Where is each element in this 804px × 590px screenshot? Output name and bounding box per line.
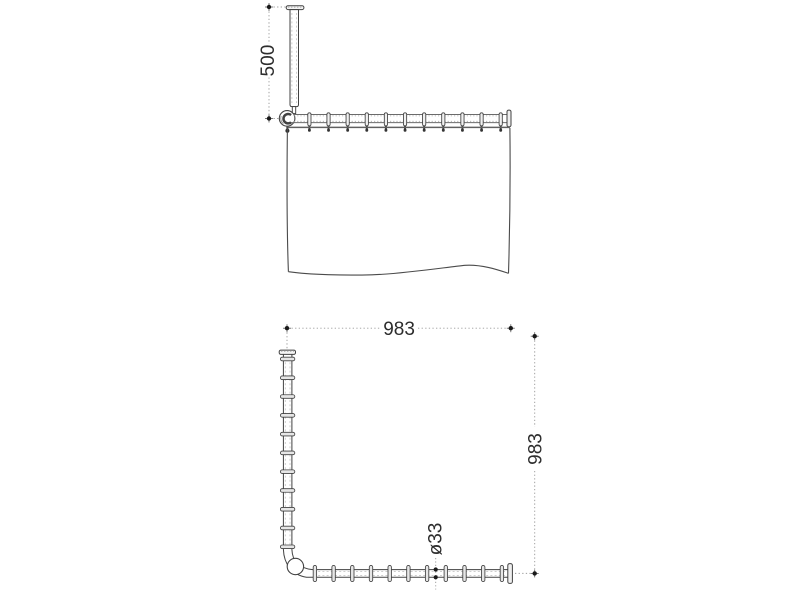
svg-text:983: 983 <box>383 319 415 340</box>
svg-text:983: 983 <box>525 433 546 465</box>
svg-text:ø33: ø33 <box>425 523 446 556</box>
svg-text:500: 500 <box>258 45 279 77</box>
